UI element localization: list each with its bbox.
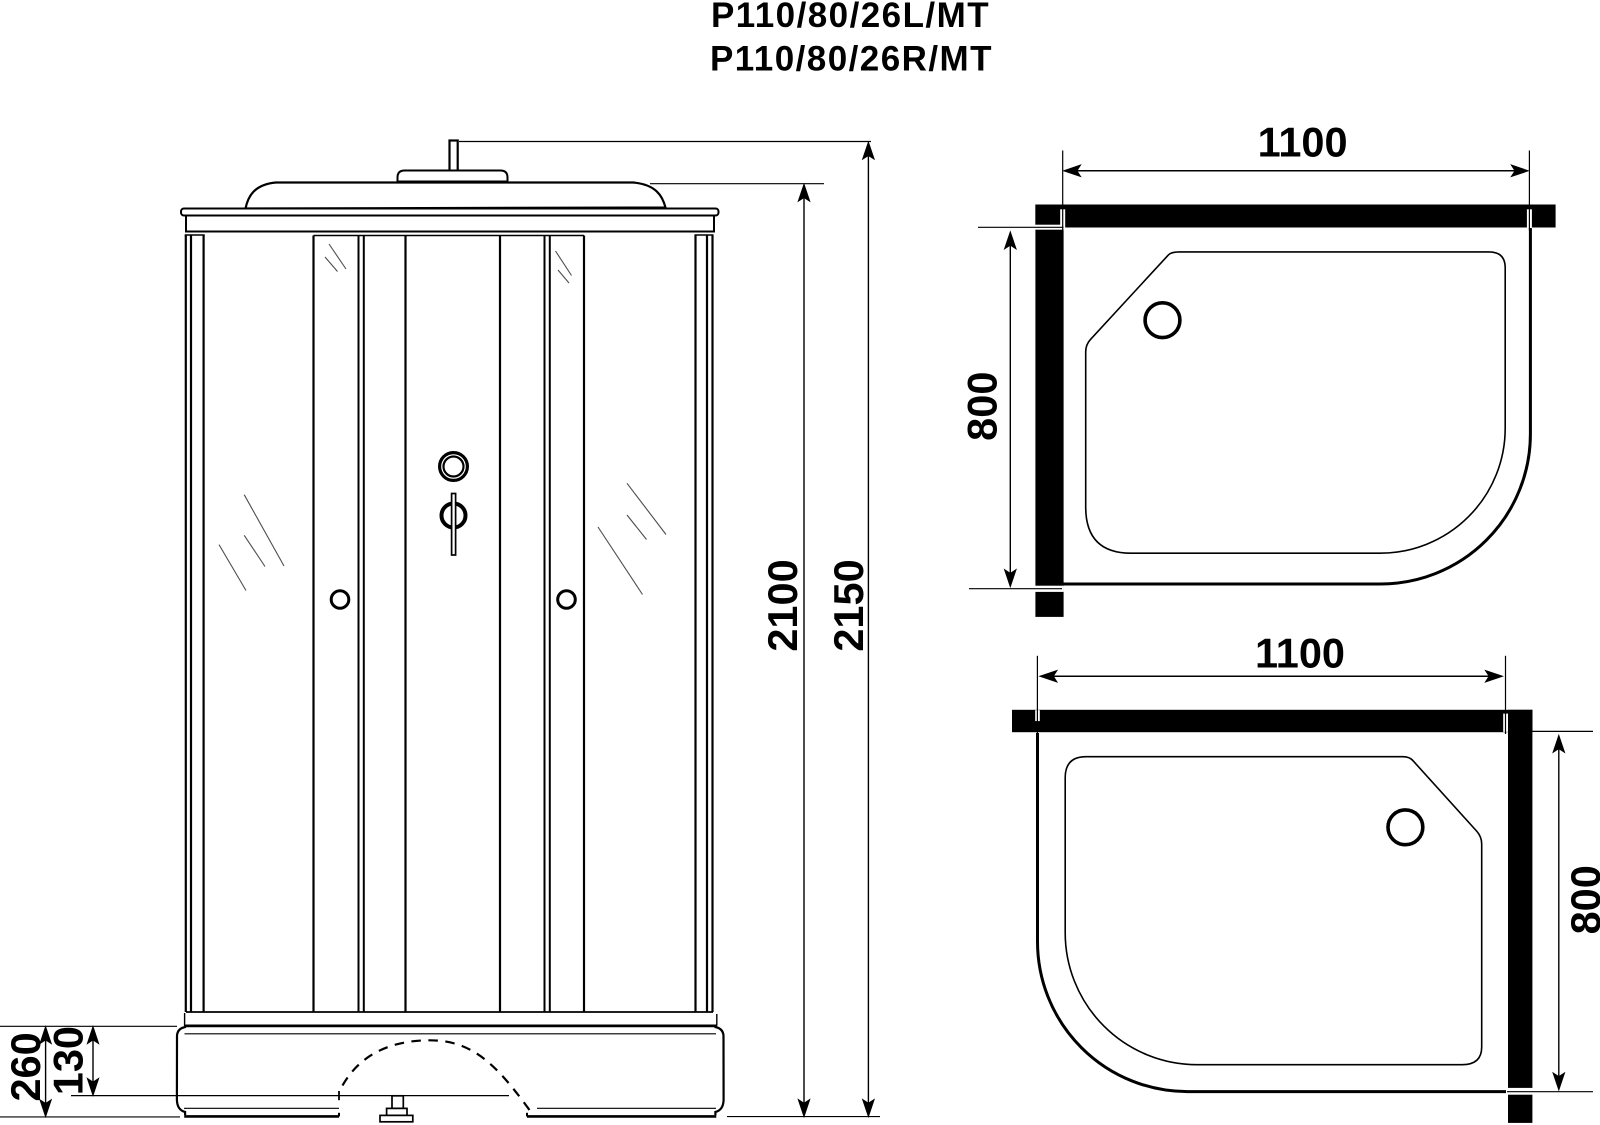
svg-text:2150: 2150	[825, 559, 872, 651]
svg-text:1100: 1100	[1255, 630, 1345, 677]
svg-text:800: 800	[1562, 865, 1600, 934]
svg-text:1100: 1100	[1258, 119, 1348, 166]
svg-text:P110/80/26L/MT: P110/80/26L/MT	[711, 0, 990, 35]
svg-text:260: 260	[2, 1032, 49, 1101]
svg-text:800: 800	[958, 372, 1005, 441]
svg-text:P110/80/26R/MT: P110/80/26R/MT	[710, 40, 993, 79]
svg-text:130: 130	[44, 1026, 91, 1095]
svg-text:2100: 2100	[759, 559, 806, 651]
